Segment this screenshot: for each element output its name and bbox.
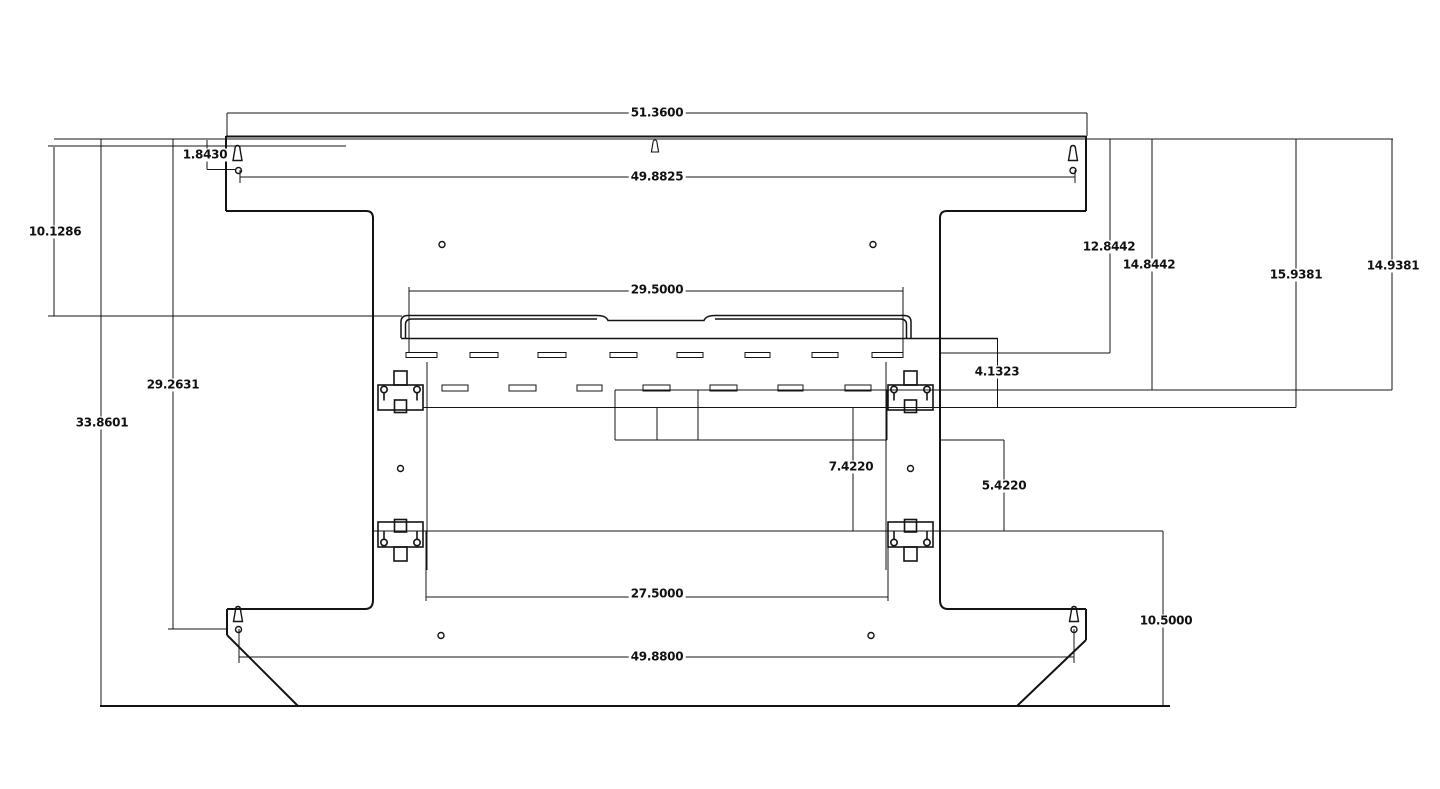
dim-right-depth-3: 15.9381: [1268, 269, 1325, 282]
dim-crossbar-width: 29.5000: [629, 284, 686, 297]
keyhole-slots: [233, 140, 1079, 622]
dim-lower-right-height: 10.5000: [1138, 615, 1195, 628]
dim-upper-left-height: 10.1286: [27, 226, 84, 239]
dim-center-drop-1: 7.4220: [827, 461, 876, 474]
dim-left-depth-2: 29.2631: [145, 379, 202, 392]
dim-upper-hole-span: 49.8825: [629, 171, 686, 184]
part-geometry: [0, 0, 1440, 789]
dim-center-drop-2: 5.4220: [980, 480, 1029, 493]
clamp-top-right: [888, 371, 933, 413]
bottom-bevel-right: [1017, 640, 1086, 706]
dim-overall-width-top: 51.3600: [629, 107, 686, 120]
clamp-top-left: [378, 371, 423, 413]
drill-holes: [236, 168, 1078, 639]
slot-holes: [406, 353, 903, 392]
mounting-rails: [427, 362, 886, 570]
fillet-top-right: [940, 211, 947, 218]
dim-right-depth-1: 12.8442: [1081, 241, 1138, 254]
clamp-bottom-right: [888, 520, 933, 562]
dim-bracket-drop: 4.1323: [973, 366, 1022, 379]
part-outline: [226, 136, 1086, 706]
fillet-bottom-left: [365, 600, 373, 609]
crossbar: [401, 316, 998, 339]
dim-left-depth-3: 33.8601: [74, 417, 131, 430]
dim-clamp-rail-span: 27.5000: [629, 588, 686, 601]
fillet-bottom-right: [940, 600, 948, 609]
dim-right-depth-2: 14.8442: [1121, 259, 1178, 272]
clamp-bottom-left: [378, 520, 423, 562]
fillet-top-left: [366, 211, 373, 218]
dim-lower-hole-span: 49.8800: [629, 651, 686, 664]
bottom-bevel-left: [227, 635, 298, 706]
drawing-canvas: 51.3600 1.8430 49.8825 10.1286 12.8442 1…: [0, 0, 1440, 789]
dim-corner-hole-offset: 1.8430: [181, 149, 230, 162]
center-bracket: [615, 390, 887, 440]
dim-right-depth-4: 14.9381: [1365, 260, 1422, 273]
